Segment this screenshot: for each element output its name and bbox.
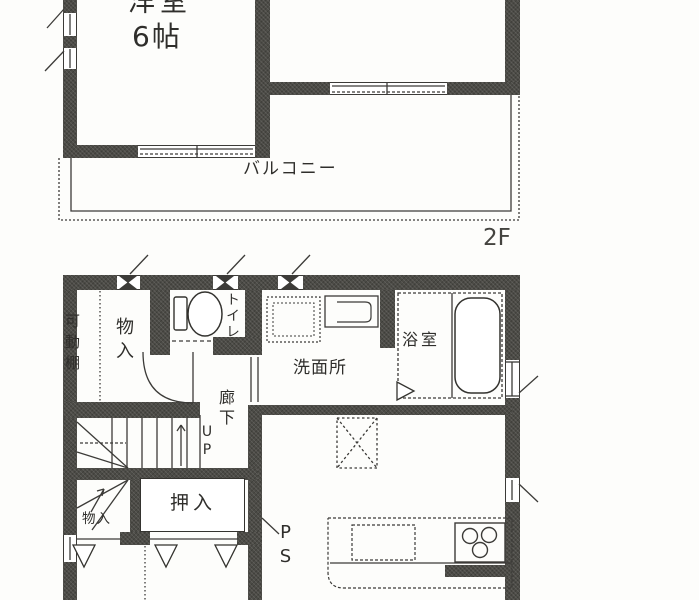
wall-1f-right-c — [505, 502, 520, 600]
kitchen-sink-icon — [352, 525, 415, 560]
window-1f-top-2 — [213, 275, 238, 290]
wall-2f-room-bottom-a — [63, 145, 138, 158]
closet-door-triangle-2 — [155, 545, 177, 567]
floor-plan: 洋室 6帖 バルコニー 2F 可動棚 物入 トイレ 洗面所 浴室 廊下 UP 物… — [0, 0, 699, 600]
stove-burners-icon — [455, 523, 505, 562]
wall-1f-top-c — [238, 275, 278, 290]
window-1f-top-3 — [278, 275, 303, 290]
window-2f-left-2 — [63, 48, 77, 69]
wall-2f-room-bottom-b — [255, 145, 268, 158]
wall-washroom-bottom — [258, 405, 512, 415]
window-2f-room-bottom — [138, 145, 255, 158]
floor-label-2f: 2F — [483, 227, 511, 250]
wall-2f-left-b — [63, 36, 77, 48]
toilet-tank-icon — [174, 297, 187, 330]
toilet-fixture-icon — [188, 292, 222, 336]
hinged-door-arc-icon — [143, 352, 193, 403]
wall-2f-topright-a — [270, 82, 330, 95]
label-stairs-up: UP — [200, 424, 214, 460]
kitchen-counter-icon — [328, 518, 512, 588]
wall-corridor-ldk — [248, 405, 262, 600]
washbasin-icon — [325, 296, 378, 327]
wall-closet-left — [130, 480, 140, 532]
window-2f-topright — [330, 82, 447, 95]
wall-1f-left-b — [63, 562, 77, 600]
room-label-washroom: 洗面所 — [293, 360, 347, 377]
room-label-movable-shelf: 可動棚 — [64, 313, 79, 376]
wall-kitchen-counter-end — [445, 565, 512, 577]
bathtub-icon — [455, 298, 500, 393]
window-1f-left — [63, 535, 77, 562]
wall-bottom-seg-b — [237, 532, 262, 545]
wall-1f-right-a — [505, 290, 520, 360]
room-label-corridor: 廊下 — [217, 389, 233, 429]
wall-toilet-left — [150, 290, 170, 355]
refrigerator-space-icon — [337, 418, 377, 468]
room-label-bathroom: 浴室 — [402, 332, 440, 348]
room-label-western-room: 洋室 — [128, 0, 192, 16]
bathroom-door-icon — [397, 382, 414, 400]
washing-machine-pan-icon — [267, 297, 320, 342]
wall-washroom-bathroom — [380, 290, 395, 348]
wall-2f-topright-b — [447, 82, 520, 95]
window-2f-left-1 — [63, 13, 77, 36]
closet-door-triangle-3 — [215, 545, 237, 567]
room-label-balcony: バルコニー — [243, 161, 338, 178]
wall-hall-left — [63, 402, 200, 418]
window-bathroom — [505, 360, 520, 398]
wall-2f-left-a — [63, 0, 77, 13]
room-label-closet: 押入 — [170, 494, 216, 513]
window-1f-top-1 — [117, 275, 140, 290]
wall-1f-top-a — [63, 275, 117, 290]
wall-bottom-seg-a — [120, 532, 150, 545]
room-label-storage-under-stairs: 物入 — [82, 513, 111, 527]
room-label-western-room-size: 6帖 — [132, 23, 182, 51]
room-label-toilet: トイレ — [225, 292, 239, 340]
wall-2f-right — [505, 0, 520, 95]
label-pipe-space: PS — [276, 522, 294, 570]
window-kitchen — [505, 478, 520, 502]
wall-1f-top-d — [303, 275, 520, 290]
wall-1f-top-b — [140, 275, 213, 290]
room-label-storage-upper: 物入 — [114, 317, 132, 365]
wall-2f-center — [255, 0, 270, 158]
